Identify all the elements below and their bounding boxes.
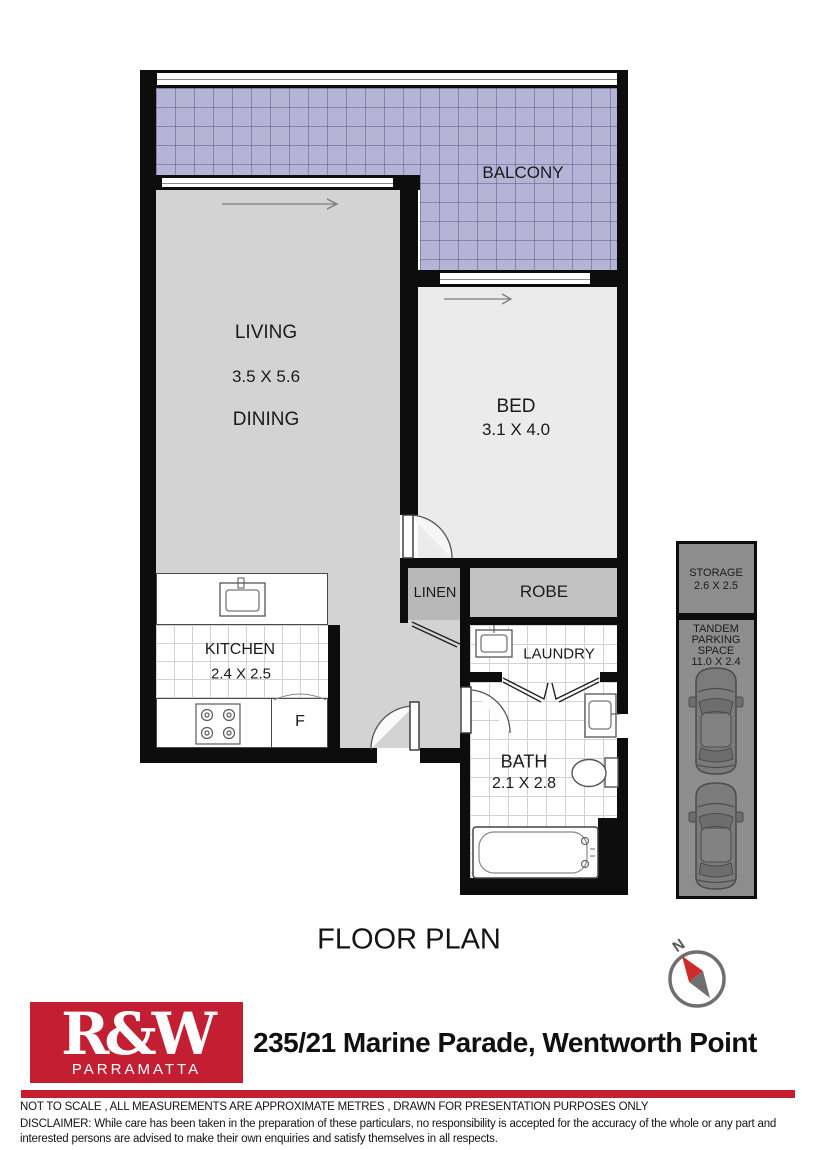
kitchen-bench-sink [156,573,328,625]
kitchen-floor [156,625,328,698]
fridge-label: F [295,713,305,731]
room-label-dining: DINING [233,409,300,431]
brand-logo-text: R&W [61,1008,212,1060]
room-dims-kitchen: 2.4 X 2.5 [211,666,271,683]
page-title: FLOOR PLAN [317,924,501,957]
wall [140,70,158,88]
wall-bath-left-upper [460,568,470,688]
compass-north-label: N [670,936,689,956]
room-label-linen: LINEN [414,585,457,601]
room-label-balcony: BALCONY [482,163,563,183]
wall [140,175,162,190]
wall-robe-top [400,558,628,568]
wall [590,270,617,287]
brand-office-label: PARRAMATTA [72,1062,201,1078]
wall-bath-notch [598,818,617,878]
living-area-side [328,573,405,625]
storage-label: STORAGE [689,567,743,579]
floor-plan-page: N BALCONY LIVING 3.5 X 5.6 DINING BED 3.… [0,0,813,1150]
wall-bottom-left [140,748,377,763]
not-to-scale-note: NOT TO SCALE , ALL MEASUREMENTS ARE APPR… [20,1101,798,1113]
wall-bottom-entry [420,748,470,763]
bed-balcony-door [440,270,590,287]
room-dims-bath: 2.1 X 2.8 [492,775,556,793]
wall [418,270,440,287]
room-label-laundry: LAUNDRY [523,646,594,663]
wall-bath-bottom [460,878,628,895]
room-label-robe: ROBE [520,582,568,602]
room-label-bed: BED [496,396,535,418]
bifold-stub-right [600,672,617,682]
wall-kitchen-right [328,625,340,748]
balcony-top-window [157,70,617,88]
compass-icon: N [670,936,724,1006]
wall-linen-left [400,568,408,623]
property-address: 235/21 Marine Parade, Wentworth Point [253,1002,757,1083]
wall [393,175,420,190]
divider-bar [21,1090,795,1098]
storage-dims: 2.6 X 2.5 [694,580,738,592]
parking-dims: 11.0 X 2.4 [691,656,740,668]
disclaimer-text: DISCLAIMER: While care has been taken in… [20,1117,798,1146]
room-label-bath: BATH [501,752,548,773]
bath-window [617,712,628,740]
brand-logo: R&W PARRAMATTA [30,1002,243,1083]
hallway-area [340,620,460,748]
wall [617,70,628,88]
wall-robe-bottom [460,617,628,625]
legal-text-block: NOT TO SCALE , ALL MEASUREMENTS ARE APPR… [20,1101,798,1146]
living-balcony-door [162,175,393,190]
bifold-stub-left [470,672,502,682]
room-dims-bed: 3.1 X 4.0 [482,420,550,440]
wall-living-bed [400,190,418,287]
kitchen-bench-stove [156,698,272,748]
room-label-living: LIVING [235,322,297,344]
wall-right [617,88,628,895]
room-label-kitchen: KITCHEN [205,641,275,659]
wall-bed-left [400,287,418,515]
room-dims-living: 3.5 X 5.6 [232,367,300,387]
